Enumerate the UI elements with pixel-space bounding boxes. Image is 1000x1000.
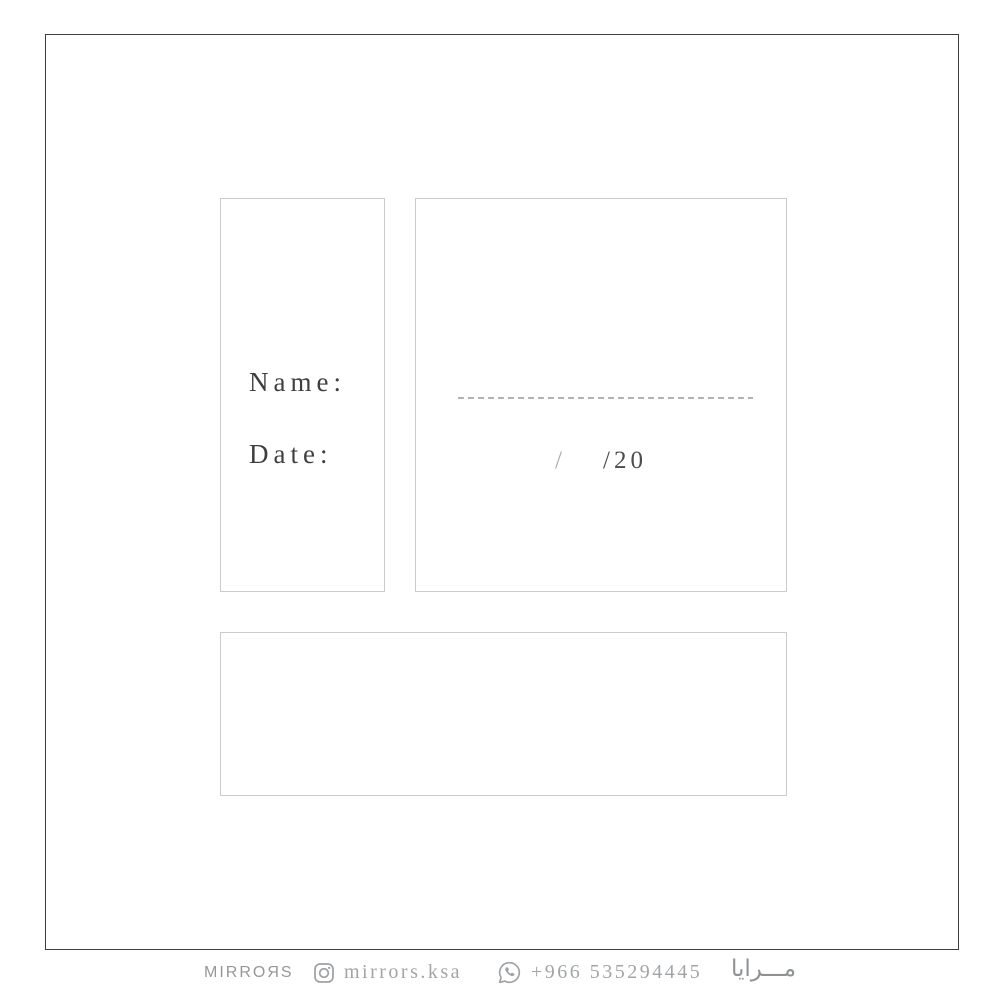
- card-design-canvas: Name: Date: / /20 MIRROЯS mirrors.ksa: [0, 0, 1000, 1000]
- date-label: Date:: [249, 439, 332, 470]
- notes-box[interactable]: [220, 632, 787, 796]
- instagram-handle: mirrors.ksa: [344, 961, 462, 984]
- date-year-placeholder: /20: [603, 447, 647, 475]
- brand-logo: MIRROЯS: [204, 964, 294, 982]
- name-label: Name:: [249, 367, 346, 398]
- brand-arabic-wordmark: مـــرايا: [731, 956, 796, 982]
- footer: MIRROЯS mirrors.ksa +966 535294445 مـــر…: [0, 952, 1000, 1000]
- name-fill-line[interactable]: [458, 397, 753, 399]
- whatsapp-icon: [497, 960, 522, 985]
- date-field[interactable]: / /20: [416, 447, 786, 475]
- date-day-slash: /: [555, 447, 565, 475]
- instagram-icon: [313, 962, 335, 984]
- fill-in-box: / /20: [415, 198, 787, 592]
- instagram-contact[interactable]: mirrors.ksa: [313, 961, 462, 984]
- whatsapp-contact[interactable]: +966 535294445: [497, 960, 702, 985]
- labels-box: Name: Date:: [220, 198, 385, 592]
- whatsapp-phone-number: +966 535294445: [531, 961, 702, 984]
